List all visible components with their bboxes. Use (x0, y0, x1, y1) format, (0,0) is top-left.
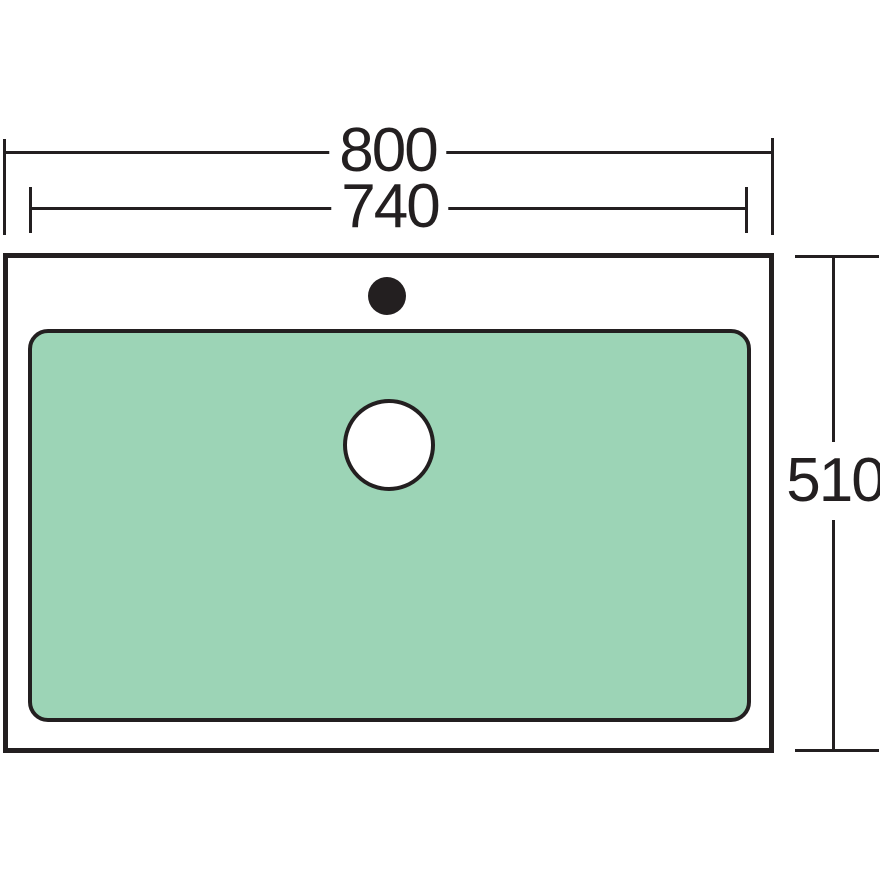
sink-bowl (28, 329, 751, 722)
bowl-width-dimension-label: 740 (331, 172, 448, 242)
bowl-width-extension-line-left (29, 187, 32, 233)
drain-hole (343, 399, 435, 491)
sink-technical-drawing: 800 740 510 (0, 0, 880, 880)
overall-depth-tick-top (795, 255, 879, 258)
tap-hole (368, 277, 406, 315)
overall-depth-tick-bottom (795, 749, 879, 752)
bowl-width-extension-line-right (745, 187, 748, 233)
overall-depth-dimension-label: 510 (784, 442, 880, 520)
